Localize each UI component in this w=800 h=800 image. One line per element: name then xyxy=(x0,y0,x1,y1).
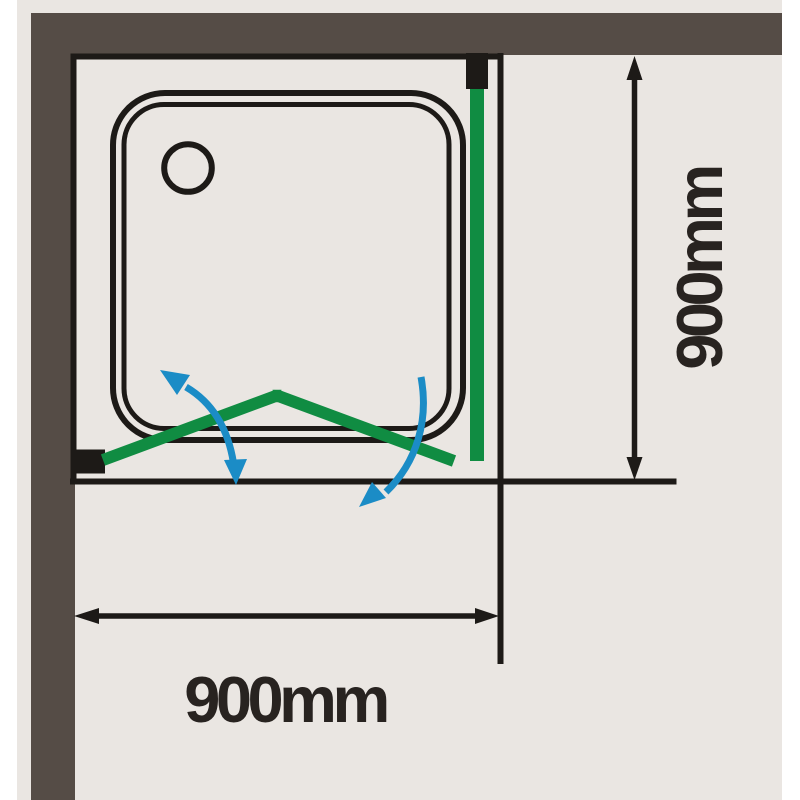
svg-text:900mm: 900mm xyxy=(663,168,736,370)
svg-text:900mm: 900mm xyxy=(184,663,386,736)
